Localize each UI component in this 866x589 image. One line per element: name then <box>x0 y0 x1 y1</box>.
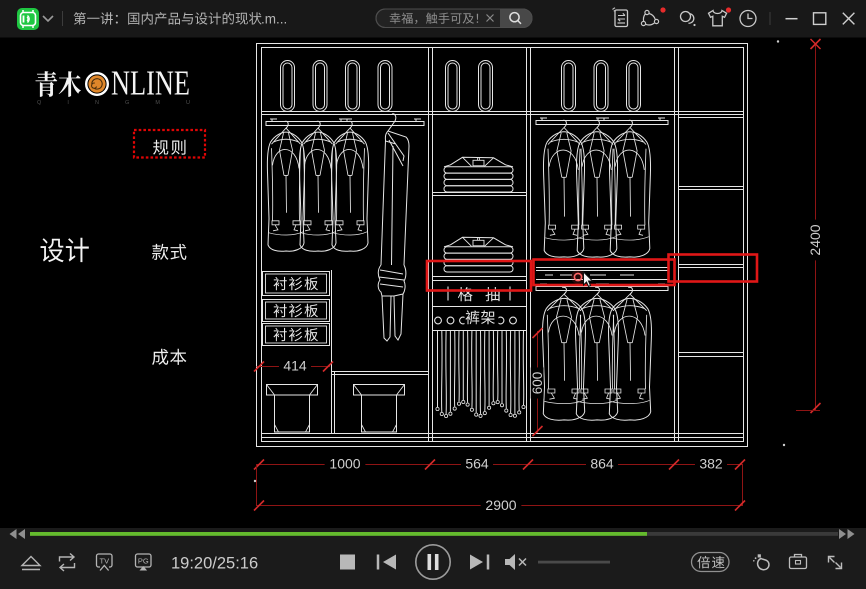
svg-text:TV: TV <box>100 557 110 566</box>
svg-text:NLINE: NLINE <box>111 64 190 103</box>
svg-text:2900: 2900 <box>485 497 516 513</box>
svg-text:PG: PG <box>138 557 149 566</box>
svg-text:600: 600 <box>530 372 545 395</box>
svg-text:864: 864 <box>590 455 614 471</box>
svg-text:2400: 2400 <box>807 224 823 255</box>
svg-text:564: 564 <box>465 455 489 471</box>
svg-text:1000: 1000 <box>329 455 360 471</box>
svg-text:382: 382 <box>699 455 723 471</box>
svg-text:414: 414 <box>283 357 307 373</box>
svg-text:19:20/25:16: 19:20/25:16 <box>171 555 258 573</box>
svg-text:.m...: .m... <box>261 12 287 27</box>
